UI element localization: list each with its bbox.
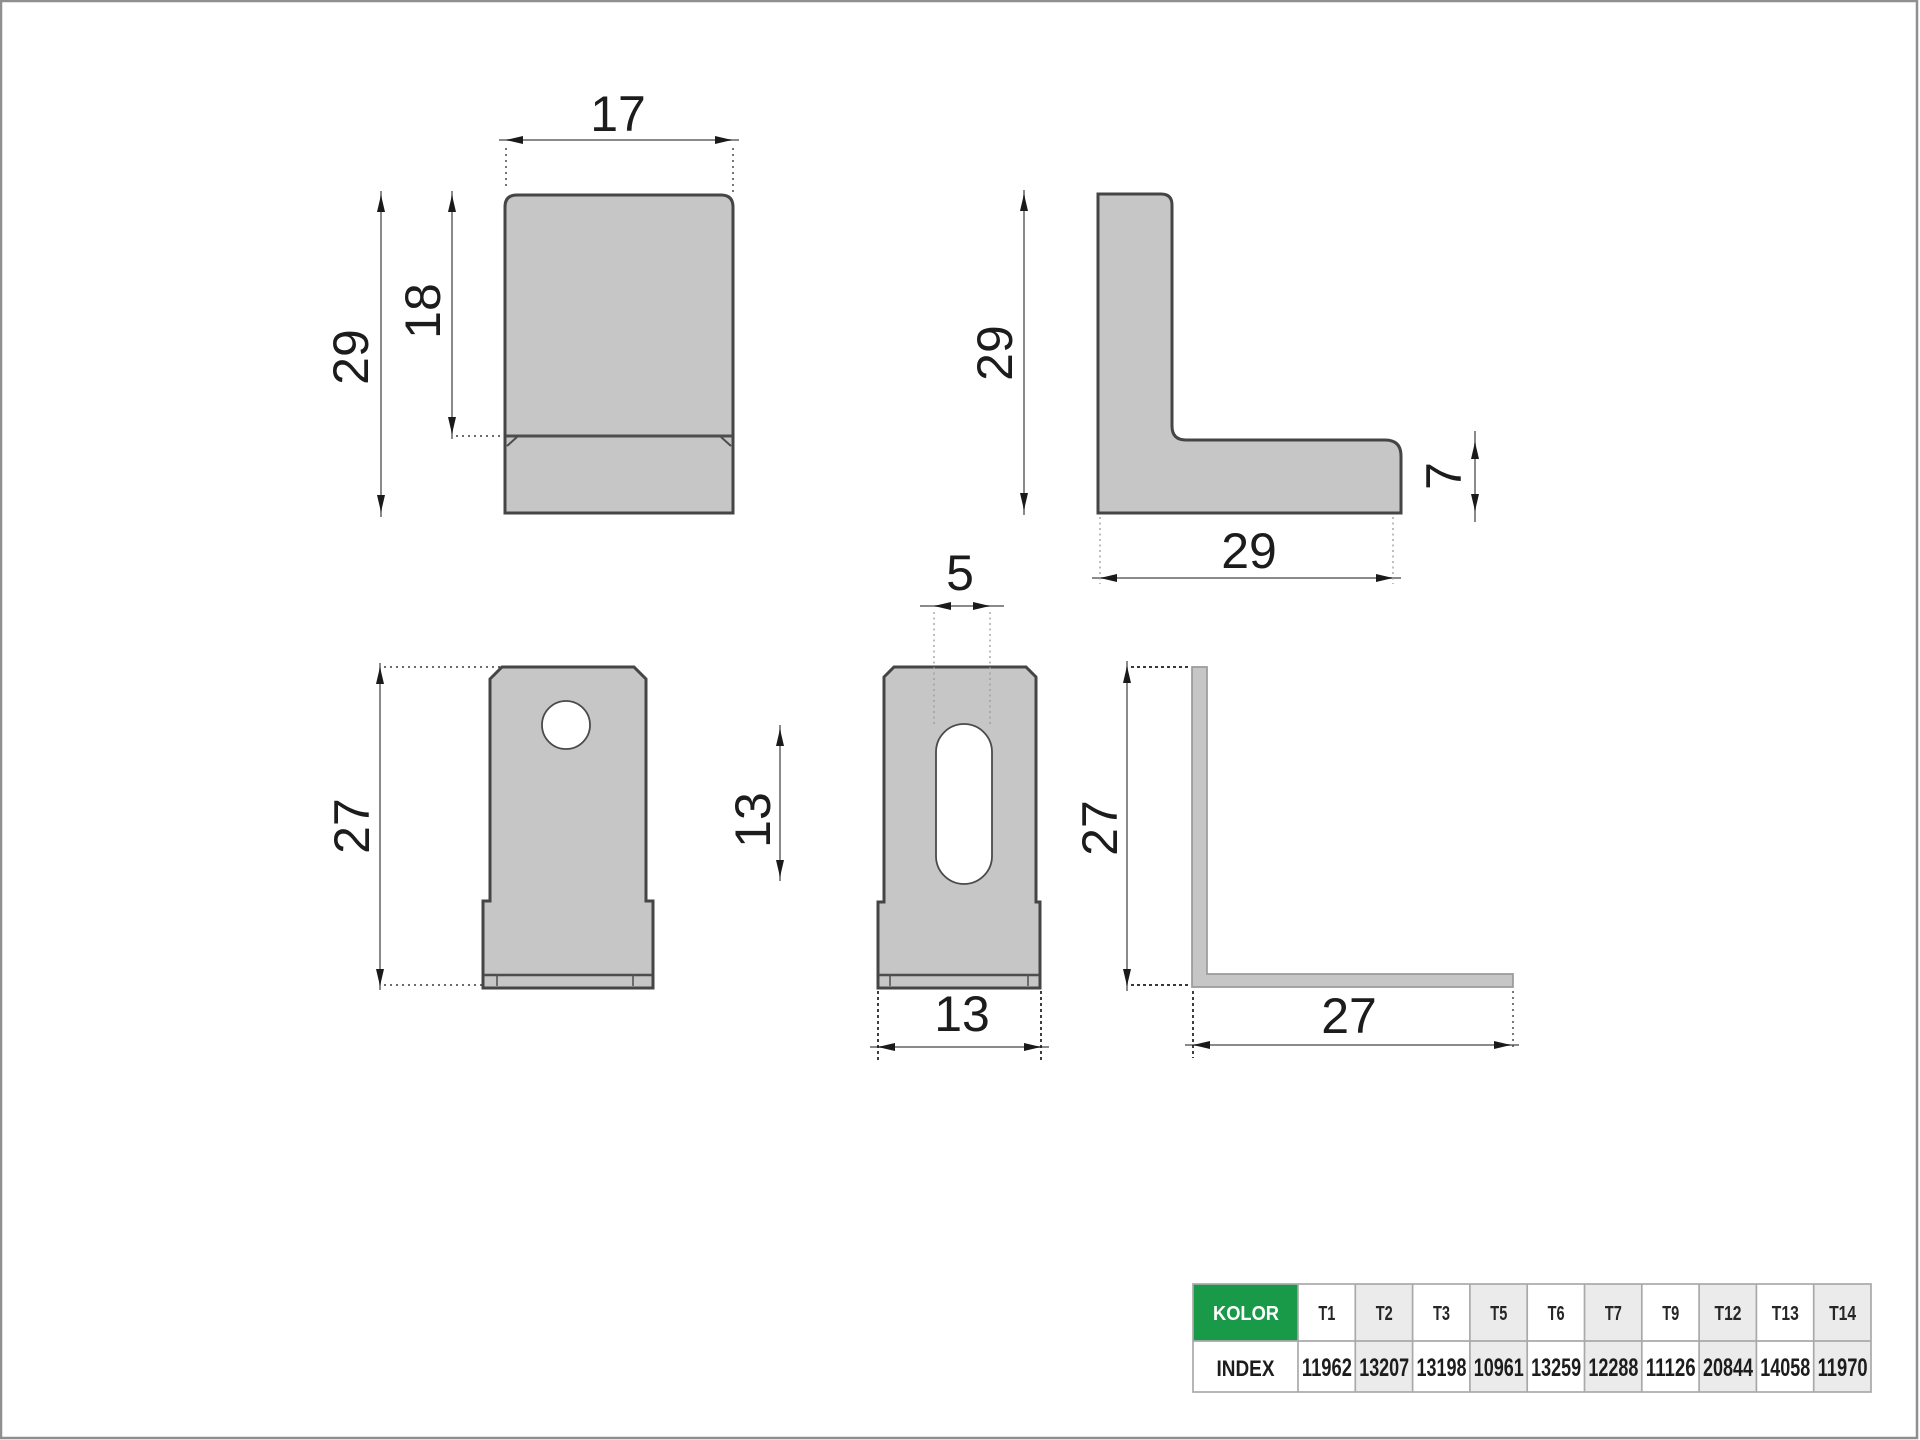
svg-text:11962: 11962 (1302, 1354, 1352, 1382)
svg-text:11126: 11126 (1646, 1354, 1696, 1382)
svg-text:T13: T13 (1772, 1303, 1799, 1325)
svg-text:18: 18 (395, 283, 451, 339)
svg-text:T2: T2 (1376, 1303, 1393, 1325)
svg-text:29: 29 (1221, 523, 1277, 579)
svg-text:27: 27 (324, 798, 380, 854)
svg-text:T7: T7 (1605, 1303, 1622, 1325)
svg-text:27: 27 (1321, 988, 1377, 1044)
svg-text:T5: T5 (1490, 1303, 1507, 1325)
svg-text:17: 17 (590, 86, 646, 142)
svg-text:27: 27 (1072, 800, 1128, 856)
svg-text:13198: 13198 (1417, 1354, 1467, 1382)
svg-text:20844: 20844 (1703, 1354, 1753, 1382)
svg-text:10961: 10961 (1474, 1354, 1524, 1382)
svg-text:13259: 13259 (1531, 1354, 1581, 1382)
svg-text:T6: T6 (1548, 1303, 1565, 1325)
svg-text:T14: T14 (1829, 1303, 1857, 1325)
svg-text:11970: 11970 (1818, 1354, 1868, 1382)
svg-text:13: 13 (934, 986, 990, 1042)
svg-text:14058: 14058 (1760, 1354, 1810, 1382)
svg-text:INDEX: INDEX (1217, 1356, 1275, 1381)
svg-text:T1: T1 (1318, 1303, 1335, 1325)
svg-text:29: 29 (967, 325, 1023, 381)
svg-text:T3: T3 (1433, 1303, 1450, 1325)
svg-text:29: 29 (323, 329, 379, 385)
svg-text:13: 13 (725, 792, 781, 848)
svg-text:T9: T9 (1662, 1303, 1679, 1325)
svg-text:12288: 12288 (1588, 1354, 1638, 1382)
svg-text:5: 5 (946, 545, 974, 601)
svg-text:7: 7 (1416, 462, 1472, 490)
svg-text:KOLOR: KOLOR (1213, 1303, 1280, 1325)
svg-text:T12: T12 (1715, 1303, 1742, 1325)
svg-text:13207: 13207 (1359, 1354, 1409, 1382)
